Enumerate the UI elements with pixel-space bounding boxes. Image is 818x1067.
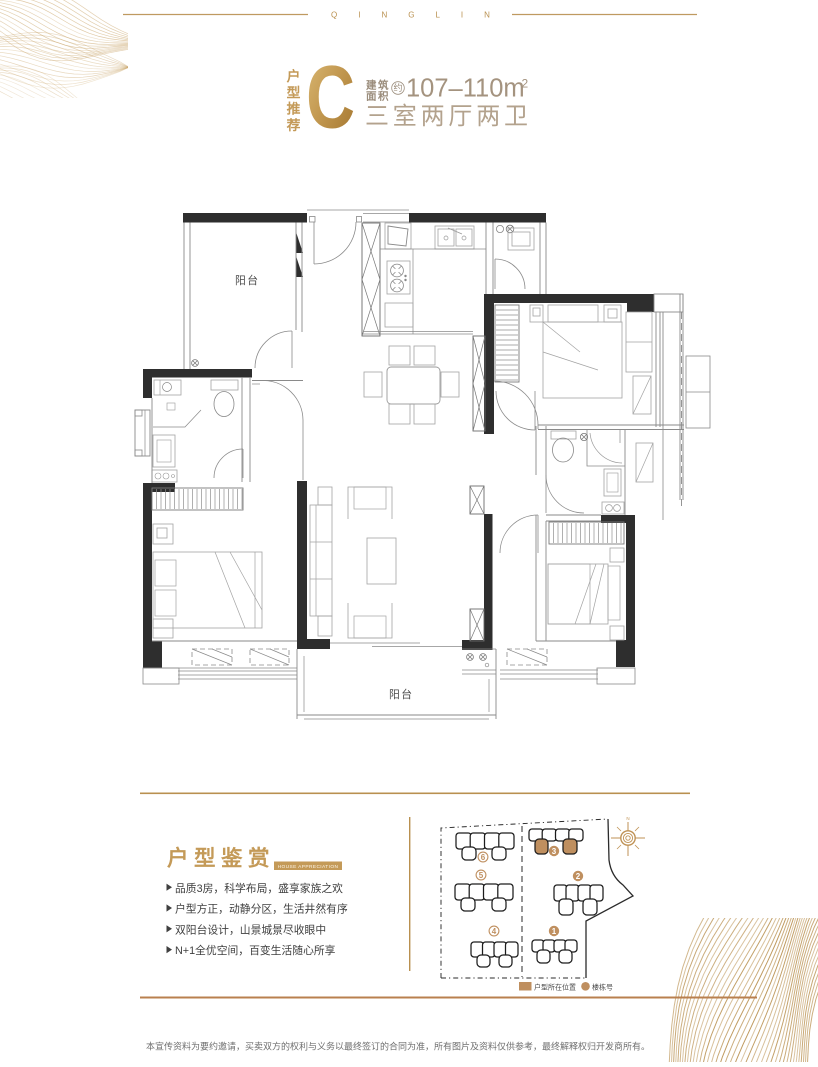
svg-text:品质3房，科学布局，盛享家族之欢: 品质3房，科学布局，盛享家族之欢 (175, 881, 343, 895)
svg-text:HOUSE APPRECIATION: HOUSE APPRECIATION (278, 864, 339, 870)
svg-text:107–110m: 107–110m (406, 75, 525, 103)
svg-text:双阳台设计，山景城景尽收眼中: 双阳台设计，山景城景尽收眼中 (175, 922, 326, 936)
svg-text:型: 型 (287, 84, 301, 100)
svg-text:N+1全优空间，百变生活随心所享: N+1全优空间，百变生活随心所享 (175, 943, 336, 957)
svg-text:本宣传资料为要约邀请，买卖双方的权利与义务以最终签订的合同为: 本宣传资料为要约邀请，买卖双方的权利与义务以最终签订的合同为准，所有图片及资料仅… (146, 1041, 650, 1052)
svg-text:户: 户 (287, 68, 301, 84)
svg-text:2: 2 (522, 77, 529, 91)
svg-text:QINGLIN: QINGLIN (331, 11, 511, 20)
svg-text:户型方正，动静分区，生活井然有序: 户型方正，动静分区，生活井然有序 (175, 902, 348, 916)
svg-text:阳台: 阳台 (389, 687, 414, 701)
svg-text:4: 4 (492, 927, 497, 936)
svg-text:6: 6 (481, 853, 486, 862)
svg-text:楼栋号: 楼栋号 (592, 983, 613, 992)
svg-text:3: 3 (552, 847, 557, 856)
svg-text:阳台: 阳台 (235, 273, 260, 287)
svg-text:2: 2 (576, 872, 581, 881)
svg-text:C: C (306, 46, 355, 146)
svg-text:户型所在位置: 户型所在位置 (534, 983, 576, 992)
svg-text:N: N (626, 816, 629, 821)
svg-text:约: 约 (393, 82, 402, 93)
svg-text:推: 推 (287, 101, 301, 117)
svg-text:1: 1 (552, 927, 557, 936)
svg-text:面积: 面积 (366, 90, 390, 103)
svg-text:荐: 荐 (287, 117, 301, 133)
svg-text:5: 5 (479, 871, 484, 880)
svg-text:户型鉴赏: 户型鉴赏 (167, 846, 275, 871)
svg-text:三室两厅两卫: 三室两厅两卫 (365, 103, 532, 130)
